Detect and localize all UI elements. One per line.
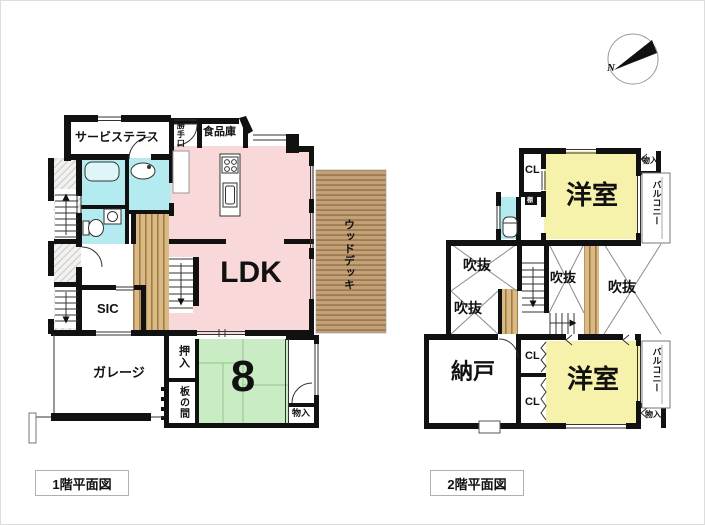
- room-label-balcony-bottom: バルコニー: [651, 347, 660, 392]
- compass-north-label: N: [607, 63, 615, 75]
- room-label-service-terrace: サービステラス: [75, 131, 159, 144]
- caption-floor2: 2階平面図: [430, 470, 524, 496]
- room-label-closet-top: CL: [525, 165, 540, 177]
- room-label-shelf: 棚: [527, 198, 533, 204]
- room-label-ldk: LDK: [214, 257, 288, 289]
- room-label-garage: ガレージ: [93, 366, 145, 380]
- room-label-sic: SIC: [97, 302, 119, 316]
- room-label-back-door: 勝手口: [176, 121, 184, 148]
- caption-floor1-text: 1階平面図: [52, 474, 111, 493]
- room-label-void-bottom-left: 吹抜: [454, 301, 482, 316]
- room-label-tatami-8: 8: [219, 354, 267, 400]
- room-label-wood-deck: ウッドデッキ: [342, 219, 354, 291]
- room-label-western-room-top: 洋室: [561, 182, 623, 209]
- room-label-oshiire: 押入: [177, 345, 189, 369]
- room-label-balcony-top: バルコニー: [651, 180, 660, 225]
- room-label-void-right: 吹抜: [608, 280, 636, 295]
- room-label-storage-1f: 物入: [292, 409, 310, 418]
- room-label-nando: 納戸: [448, 360, 498, 383]
- room-label-void-center: 吹抜: [550, 271, 576, 285]
- caption-floor1: 1階平面図: [35, 470, 129, 496]
- room-label-pantry: 食品庫: [203, 127, 236, 139]
- room-label-closet-bottom: CL: [525, 397, 540, 409]
- room-label-storage-bottom-2f: 物入: [645, 411, 661, 419]
- caption-floor2-text: 2階平面図: [447, 474, 506, 493]
- room-label-itanoma: 板の間: [177, 386, 188, 419]
- room-label-closet-mid: CL: [525, 351, 540, 363]
- floorplan-canvas: サービステラス 勝手口 食品庫 LDK ウッドデッキ SIC ガレージ 押入 板…: [0, 0, 705, 525]
- room-label-storage-top-2f: 物入: [642, 157, 658, 165]
- room-label-western-room-bottom: 洋室: [562, 366, 624, 393]
- room-label-void-top-left: 吹抜: [463, 258, 491, 273]
- compass-icon: [608, 34, 658, 84]
